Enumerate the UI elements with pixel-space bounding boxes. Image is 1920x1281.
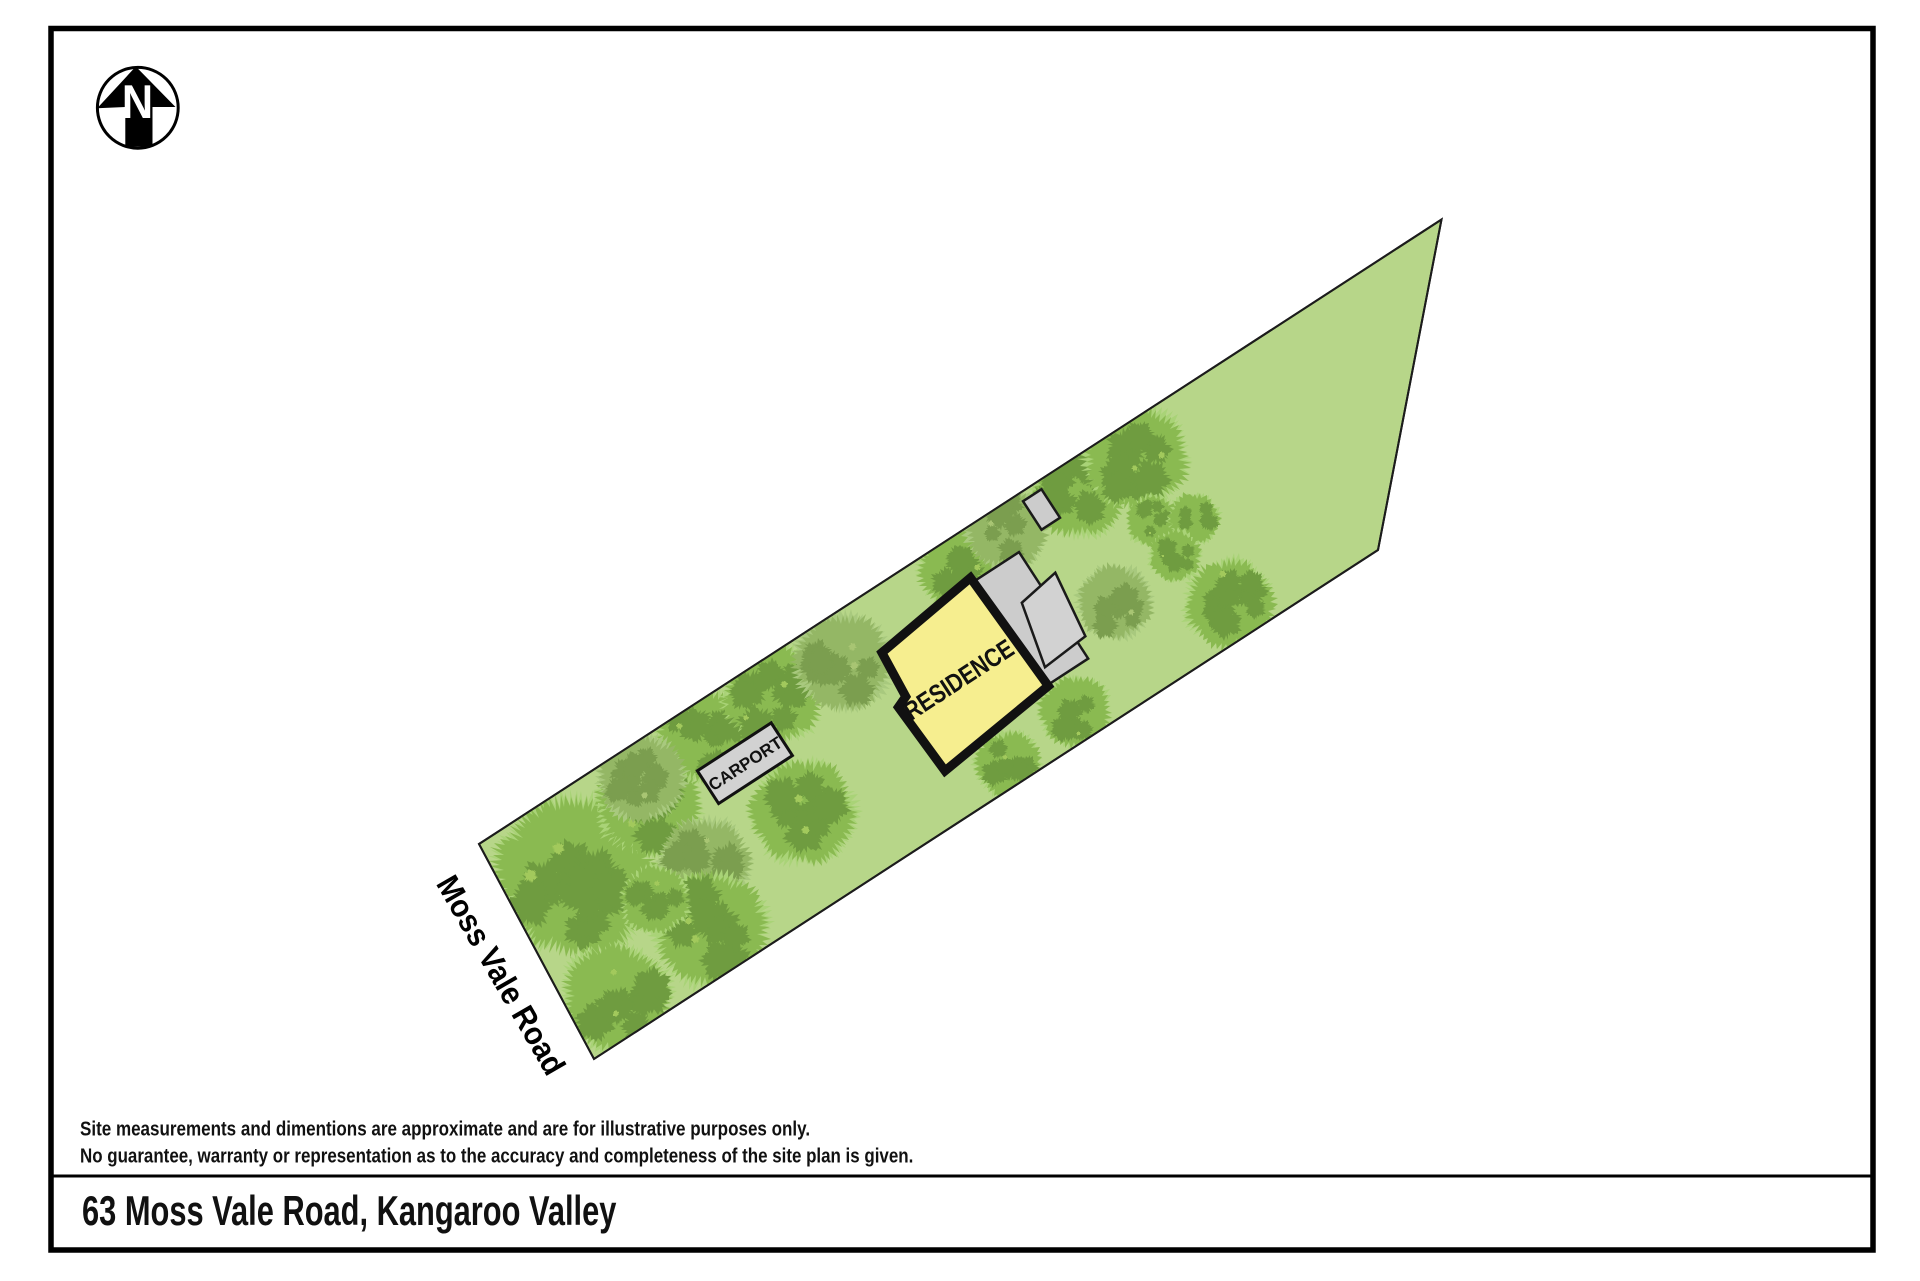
svg-text:Site measurements and dimentio: Site measurements and dimentions are app… <box>80 1117 810 1140</box>
svg-text:No guarantee, warranty or repr: No guarantee, warranty or representation… <box>80 1144 913 1167</box>
svg-text:63 Moss Vale Road, Kangaroo Va: 63 Moss Vale Road, Kangaroo Valley <box>82 1187 617 1234</box>
svg-text:N: N <box>122 75 153 128</box>
